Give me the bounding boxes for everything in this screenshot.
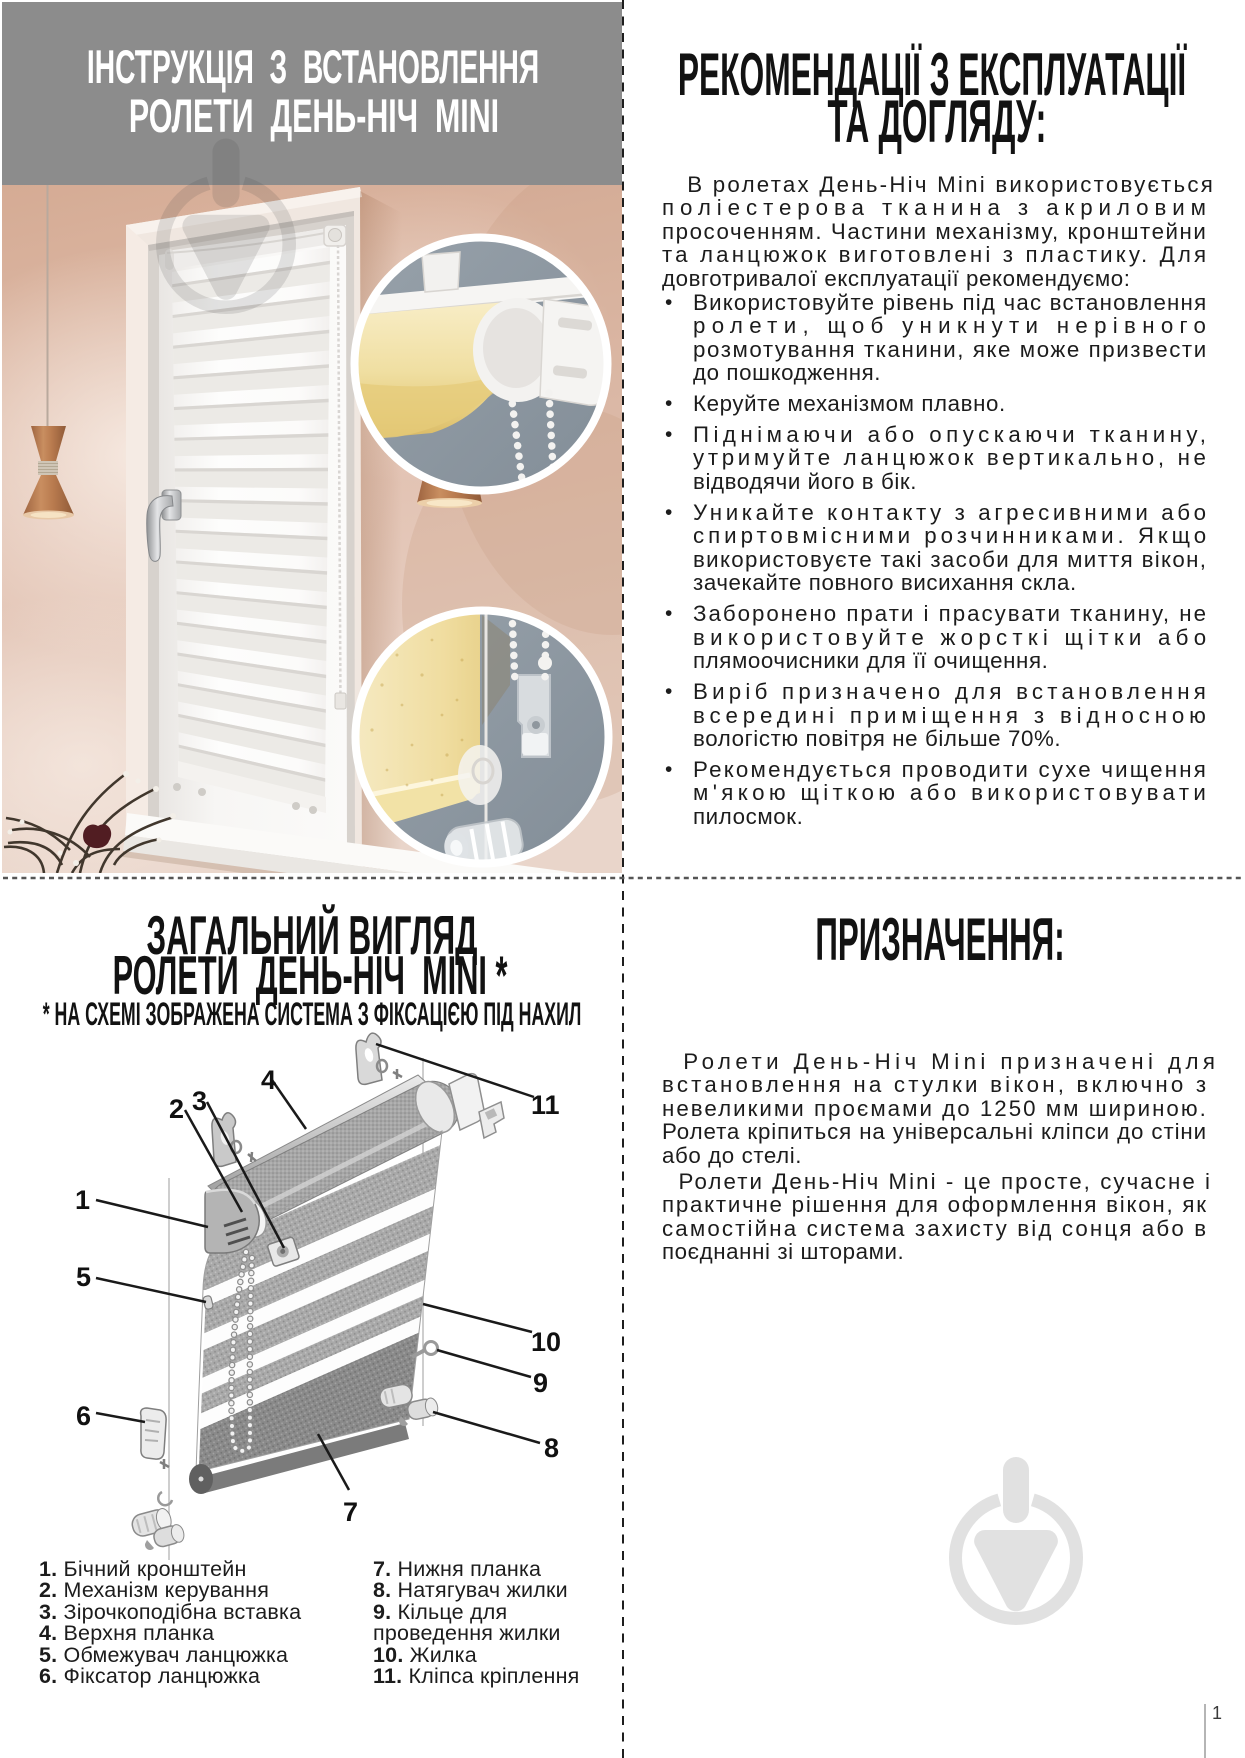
svg-text:1: 1 [1212,1703,1222,1723]
